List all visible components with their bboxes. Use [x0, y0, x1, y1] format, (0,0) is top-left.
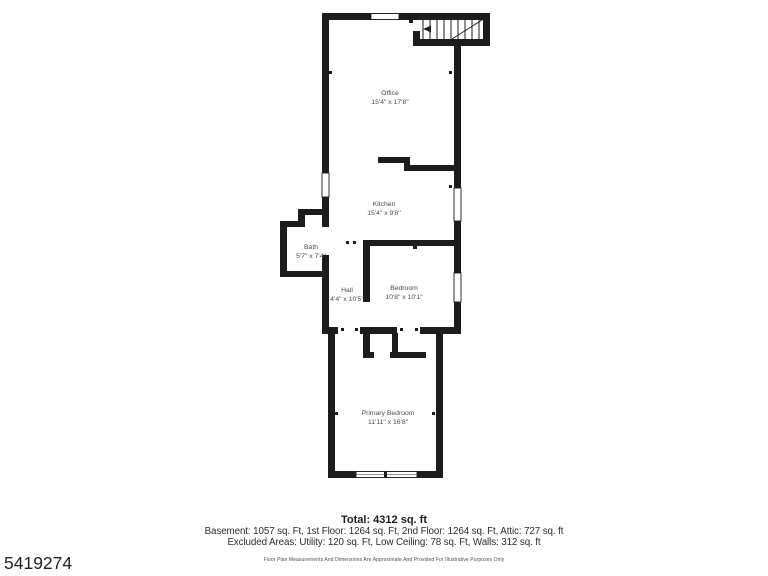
- room-label-primary-bedroom: Primary Bedroom: [362, 410, 415, 417]
- room-label-office: Office: [381, 90, 399, 97]
- window: [371, 14, 399, 20]
- window: [454, 188, 461, 221]
- staircase: [423, 20, 482, 39]
- room-dims-hall: 4'4" x 10'5": [330, 296, 364, 303]
- room-dims-bedroom: 10'8" x 10'1": [385, 294, 423, 301]
- area-summary: Total: 4312 sq. ft Basement: 1057 sq. Ft…: [0, 514, 768, 563]
- room-label-hall: Hall: [341, 287, 353, 294]
- room-label-kitchen: Kitchen: [373, 201, 396, 208]
- floor-plan-page: Office 15'4" x 17'8" Kitchen 15'4" x 9'8…: [0, 0, 768, 576]
- room-dims-primary-bedroom: 11'11" x 16'8": [368, 419, 409, 426]
- window: [454, 273, 461, 302]
- disclaimer-text: Floor Plan Measurements And Dimensions A…: [0, 557, 768, 563]
- excluded-areas-text: Excluded Areas: Utility: 120 sq. Ft, Low…: [0, 538, 768, 549]
- room-dims-kitchen: 15'4" x 9'8": [367, 210, 401, 217]
- window: [322, 173, 329, 197]
- room-label-bath: Bath: [304, 244, 318, 251]
- floor-plan: Office 15'4" x 17'8" Kitchen 15'4" x 9'8…: [0, 0, 768, 576]
- room-dims-office: 15'4" x 17'8": [371, 99, 409, 106]
- stair-direction-arrow: [423, 26, 431, 33]
- room-dims-bath: 5'7" x 7'4": [296, 253, 326, 260]
- room-label-bedroom: Bedroom: [390, 285, 418, 292]
- listing-id: 5419274: [4, 553, 72, 574]
- room-labels: Office 15'4" x 17'8" Kitchen 15'4" x 9'8…: [296, 90, 423, 426]
